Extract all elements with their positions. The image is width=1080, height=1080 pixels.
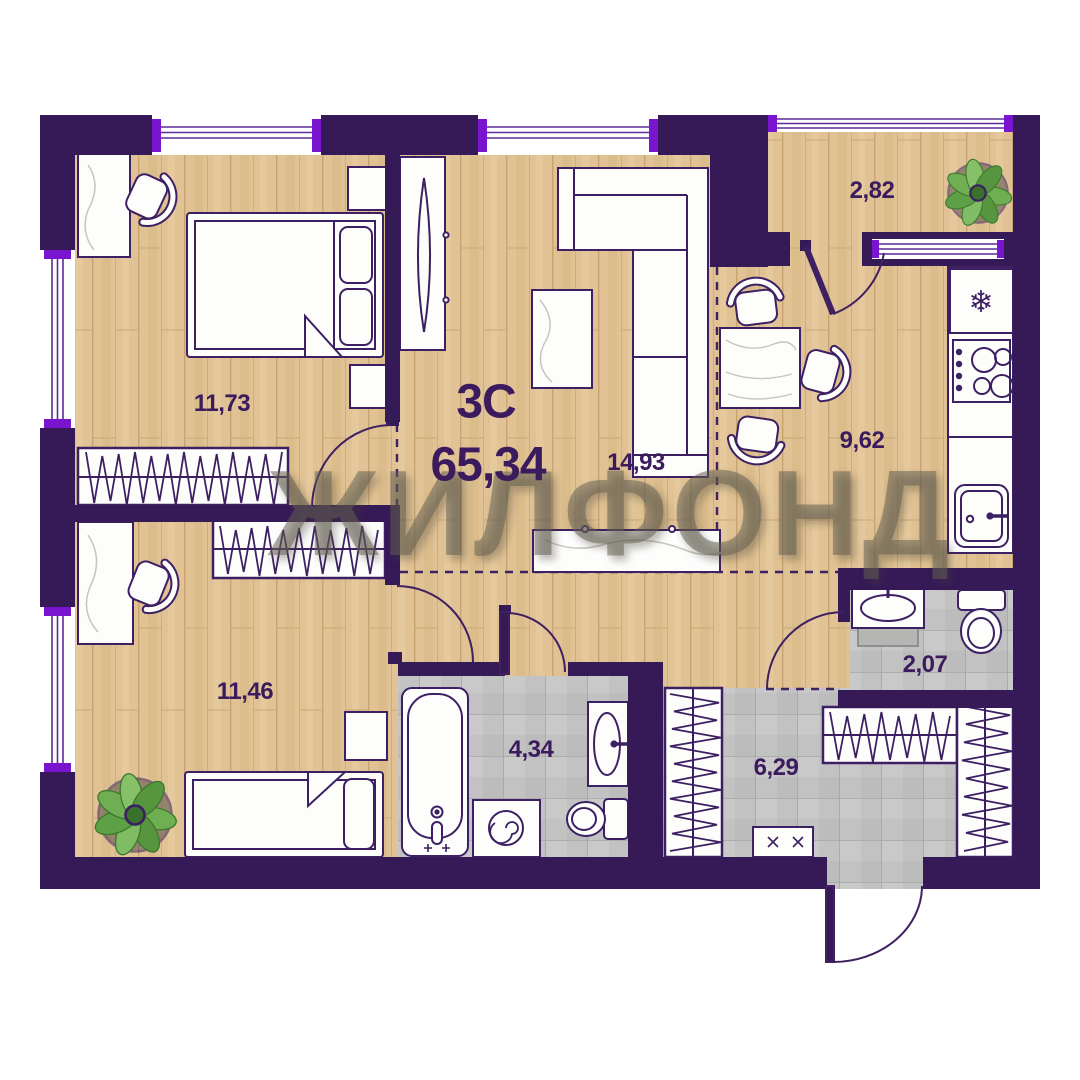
area-label-bathroom: 4,34 [509, 736, 554, 764]
window-living-top [478, 117, 658, 154]
bedroom2-bed [185, 772, 383, 857]
bedroom1-nightstand-bottom [350, 365, 387, 408]
area-label-hallway: 6,29 [754, 754, 799, 782]
area-label-balcony: 2,82 [850, 177, 895, 205]
bedroom1-wardrobe [78, 448, 288, 505]
washing-machine [473, 800, 540, 857]
window-bedroom2-left [42, 607, 73, 772]
fridge-icon: ❄ [950, 269, 1013, 333]
window-balcony-top [768, 115, 1013, 132]
svg-text:❄: ❄ [968, 285, 993, 320]
bathtub [402, 688, 468, 856]
total-area-label: 65,34 [430, 438, 545, 493]
bedroom2-wardrobe [213, 520, 385, 578]
window-bedroom1-top [152, 117, 321, 154]
hallway-wardrobe-top [823, 707, 957, 763]
bathroom-toilet [567, 799, 628, 839]
window-bedroom1-left [42, 250, 73, 428]
area-label-wc: 2,07 [903, 651, 948, 679]
entrance-door-arc [833, 886, 922, 962]
coffee-table [532, 290, 592, 388]
hallway-wardrobe-left [665, 688, 722, 857]
shoe-cabinet [753, 827, 813, 857]
bathroom-sink [588, 702, 628, 786]
area-label-bedroom-1: 11,73 [194, 390, 250, 418]
hallway-wardrobe-right [957, 700, 1013, 857]
area-label-living-room: 14,93 [607, 449, 665, 477]
stove [953, 340, 1013, 402]
area-label-bedroom-2: 11,46 [217, 678, 273, 706]
wc-sink [852, 588, 924, 646]
wc-toilet [958, 590, 1005, 653]
floor-plan-drawing: ❄ [0, 0, 1080, 1080]
floor-plan: ❄ [0, 0, 1080, 1080]
area-label-kitchen: 9,62 [840, 427, 885, 455]
apartment-type-label: 3С [456, 375, 515, 430]
bedroom2-nightstand [345, 712, 387, 760]
tv-stand [400, 157, 449, 350]
bedroom1-bed [187, 213, 383, 357]
entrance-threshold [827, 857, 923, 889]
sideboard [533, 526, 723, 572]
window-kitchen-balcony [872, 239, 1004, 259]
entrance-door-leaf [826, 886, 834, 962]
kitchen-sink [955, 485, 1008, 547]
bedroom1-nightstand-top [348, 167, 387, 210]
balcony-door-threshold [788, 232, 862, 266]
bathroom-door-leaf [500, 612, 509, 674]
